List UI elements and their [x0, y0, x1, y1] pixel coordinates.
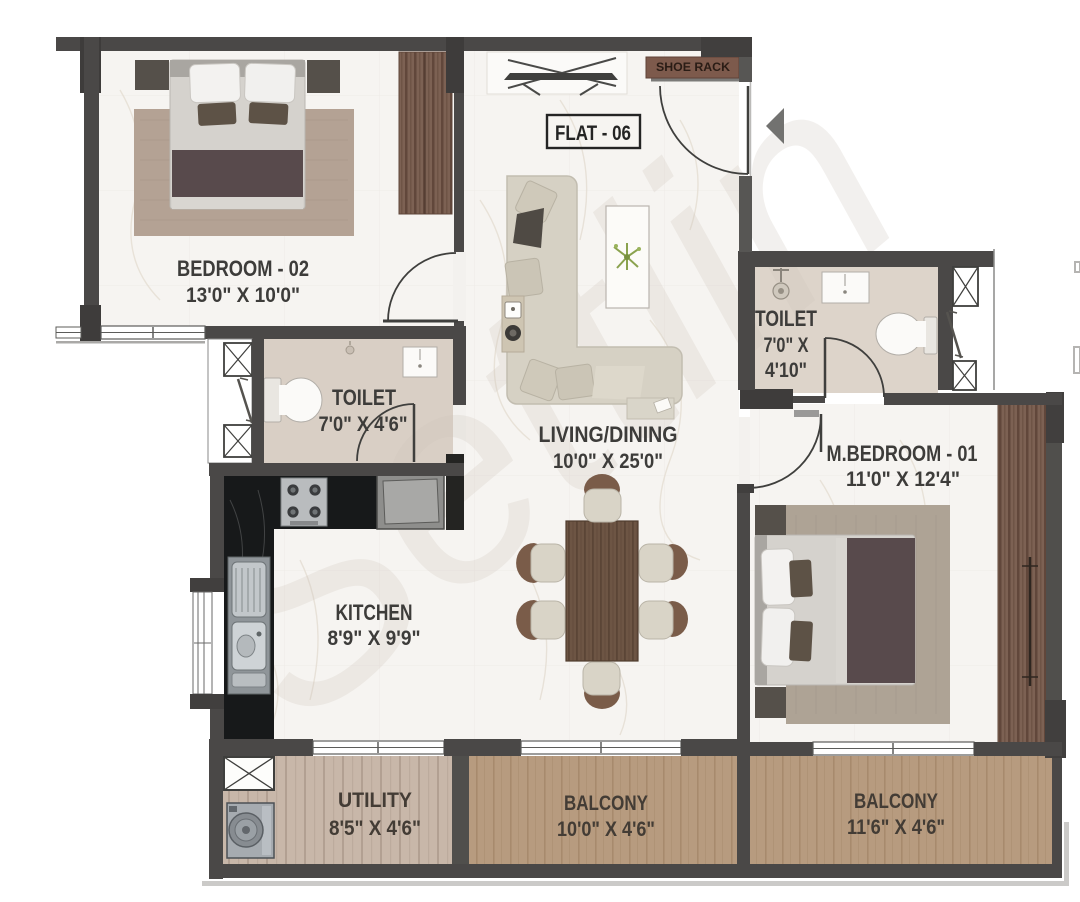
svg-text:BEDROOM - 02: BEDROOM - 02: [177, 256, 309, 281]
svg-text:7'0" X 4'6": 7'0" X 4'6": [319, 413, 408, 436]
svg-text:BALCONY: BALCONY: [564, 792, 648, 815]
svg-text:11'0" X 12'4": 11'0" X 12'4": [846, 468, 960, 491]
svg-text:M.BEDROOM - 01: M.BEDROOM - 01: [827, 441, 978, 466]
svg-text:UTILITY: UTILITY: [338, 789, 412, 812]
svg-text:LIVING/DINING: LIVING/DINING: [539, 422, 678, 447]
svg-text:13'0" X 10'0": 13'0" X 10'0": [186, 284, 300, 307]
svg-text:SHOE RACK: SHOE RACK: [656, 60, 730, 74]
svg-text:10'0" X 25'0": 10'0" X 25'0": [553, 450, 663, 473]
svg-text:10'0" X 4'6": 10'0" X 4'6": [557, 818, 655, 841]
svg-text:8'5" X 4'6": 8'5" X 4'6": [329, 817, 421, 840]
svg-text:TOILET: TOILET: [755, 306, 817, 331]
svg-text:FLAT - 06: FLAT - 06: [555, 122, 631, 145]
svg-text:8'9" X 9'9": 8'9" X 9'9": [328, 627, 421, 650]
svg-text:TOILET: TOILET: [332, 385, 396, 410]
svg-text:11'6" X 4'6": 11'6" X 4'6": [847, 816, 945, 839]
svg-text:7'0" X: 7'0" X: [764, 334, 809, 357]
svg-text:KITCHEN: KITCHEN: [336, 600, 413, 625]
svg-text:BALCONY: BALCONY: [854, 790, 938, 813]
svg-text:4'10": 4'10": [765, 359, 807, 382]
